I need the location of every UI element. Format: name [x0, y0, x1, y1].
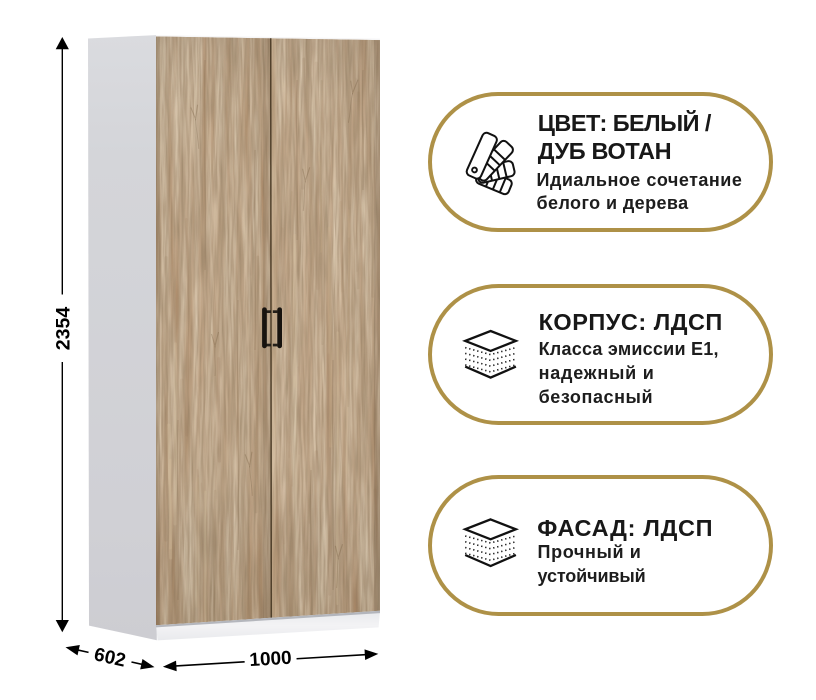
svg-text:1000: 1000: [249, 648, 292, 671]
svg-text:602: 602: [92, 644, 128, 671]
svg-text:2354: 2354: [52, 307, 74, 351]
